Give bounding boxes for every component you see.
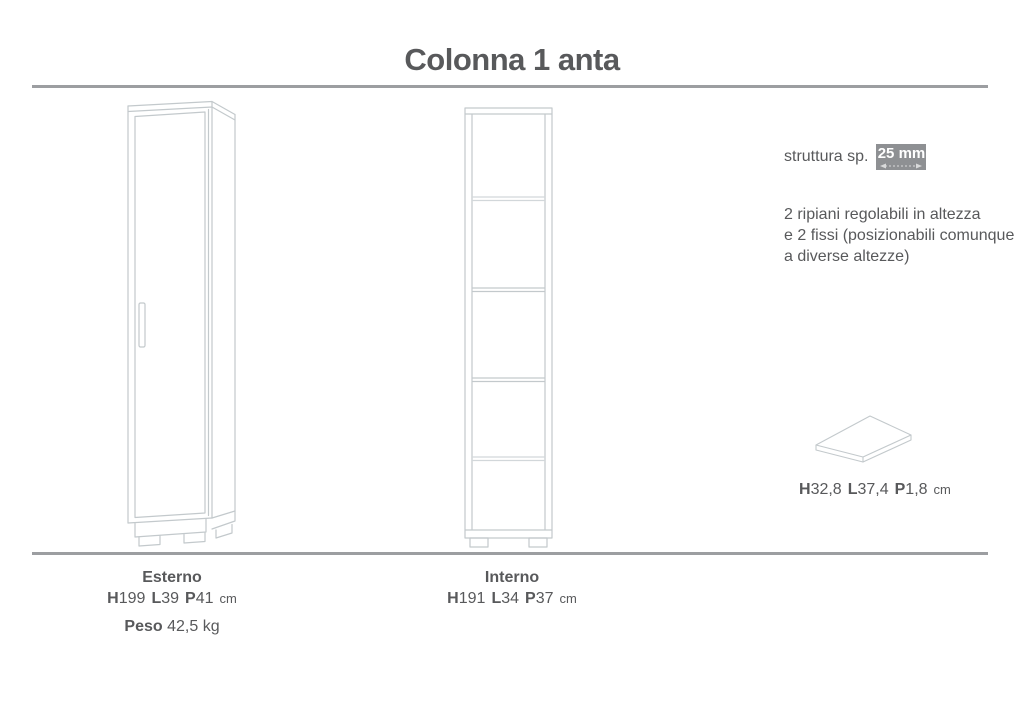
esterno-label: Esterno: [62, 569, 282, 587]
foot-right: [184, 533, 205, 543]
shelf-2: [472, 288, 545, 292]
shelf-4: [472, 457, 545, 461]
spec-sheet-page: Colonna 1 anta: [0, 0, 1024, 724]
thickness-value: 25 mm: [878, 146, 926, 161]
shelf-dim-h: H32,8: [799, 481, 842, 498]
esterno-spec-block: Esterno H199L39P41cm Peso 42,5 kg: [62, 569, 282, 636]
esterno-dimensions: H199L39P41cm: [62, 590, 282, 608]
floor-line: [32, 552, 988, 555]
thickness-badge: 25 mm: [876, 144, 926, 170]
shelf-panel-drawing: [803, 408, 923, 468]
interno-dim-p: P37: [525, 590, 553, 607]
dimension-arrow-icon: [880, 163, 922, 169]
shelf-thickness-right: [863, 435, 911, 462]
shelves-note-line: 2 ripiani regolabili in altezza: [784, 204, 1014, 225]
cabinet-side-bottom-edge: [212, 511, 235, 518]
structure-thickness-label: struttura sp.: [784, 148, 868, 166]
esterno-dim-l: L39: [151, 590, 179, 607]
shelf-thickness-left: [816, 445, 863, 462]
cabinet-top-outer-edge: [128, 102, 235, 115]
esterno-dim-p: P41: [185, 590, 213, 607]
structure-thickness-row: struttura sp. 25 mm: [784, 144, 926, 170]
shelf-panel-dimensions: H32,8L37,4P1,8cm: [799, 481, 951, 499]
carcass-outline: [465, 108, 552, 538]
shelf-dim-p: P1,8: [895, 481, 928, 498]
interno-dim-l: L34: [491, 590, 519, 607]
shelf-1: [472, 197, 545, 201]
shelf-top-face: [816, 416, 911, 457]
interno-label: Interno: [402, 569, 622, 587]
weight-value: 42,5 kg: [167, 618, 219, 635]
weight-line: Peso 42,5 kg: [62, 618, 282, 636]
shelves-note: 2 ripiani regolabili in altezza e 2 fiss…: [784, 204, 1014, 267]
cabinet-front-bottom-edge: [128, 518, 212, 523]
interno-dimensions: H191L34P37cm: [402, 590, 622, 608]
esterno-dim-unit: cm: [219, 591, 236, 606]
weight-label: Peso: [124, 618, 162, 635]
foot-left: [139, 536, 160, 546]
shelf-dim-unit: cm: [934, 482, 951, 497]
page-title: Colonna 1 anta: [0, 42, 1024, 78]
exterior-cabinet-drawing: [93, 93, 245, 561]
interno-dim-h: H191: [447, 590, 485, 607]
interior-cabinet-drawing: [450, 93, 590, 563]
door-handle: [139, 303, 145, 347]
interno-dim-unit: cm: [559, 591, 576, 606]
shelf-3: [472, 378, 545, 382]
shelf-dim-l: L37,4: [848, 481, 889, 498]
interno-spec-block: Interno H191L34P37cm: [402, 569, 622, 608]
esterno-dim-h: H199: [107, 590, 145, 607]
shelves-note-line: e 2 fissi (posizionabili comunque: [784, 225, 1014, 246]
shelves-note-line: a diverse altezze): [784, 246, 1014, 267]
foot-left: [470, 538, 488, 547]
foot-right: [529, 538, 547, 547]
title-divider: [32, 85, 988, 88]
